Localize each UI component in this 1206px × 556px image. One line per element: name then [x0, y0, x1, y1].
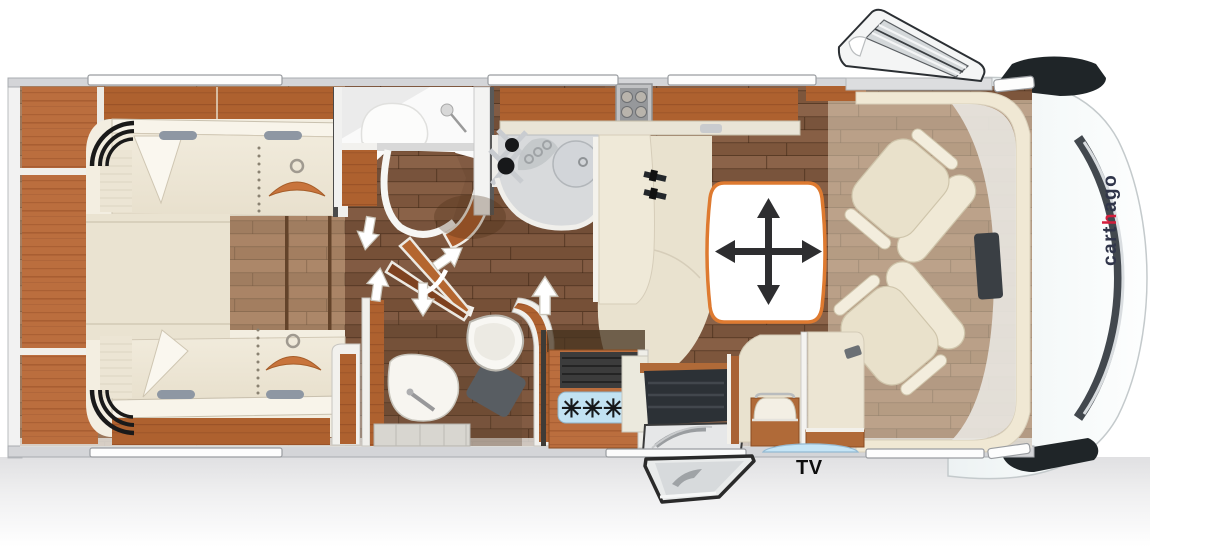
- svg-text:✳✳✳: ✳✳✳: [561, 395, 624, 423]
- svg-text:carthago: carthago: [1100, 174, 1121, 266]
- svg-text:TV: TV: [796, 457, 823, 479]
